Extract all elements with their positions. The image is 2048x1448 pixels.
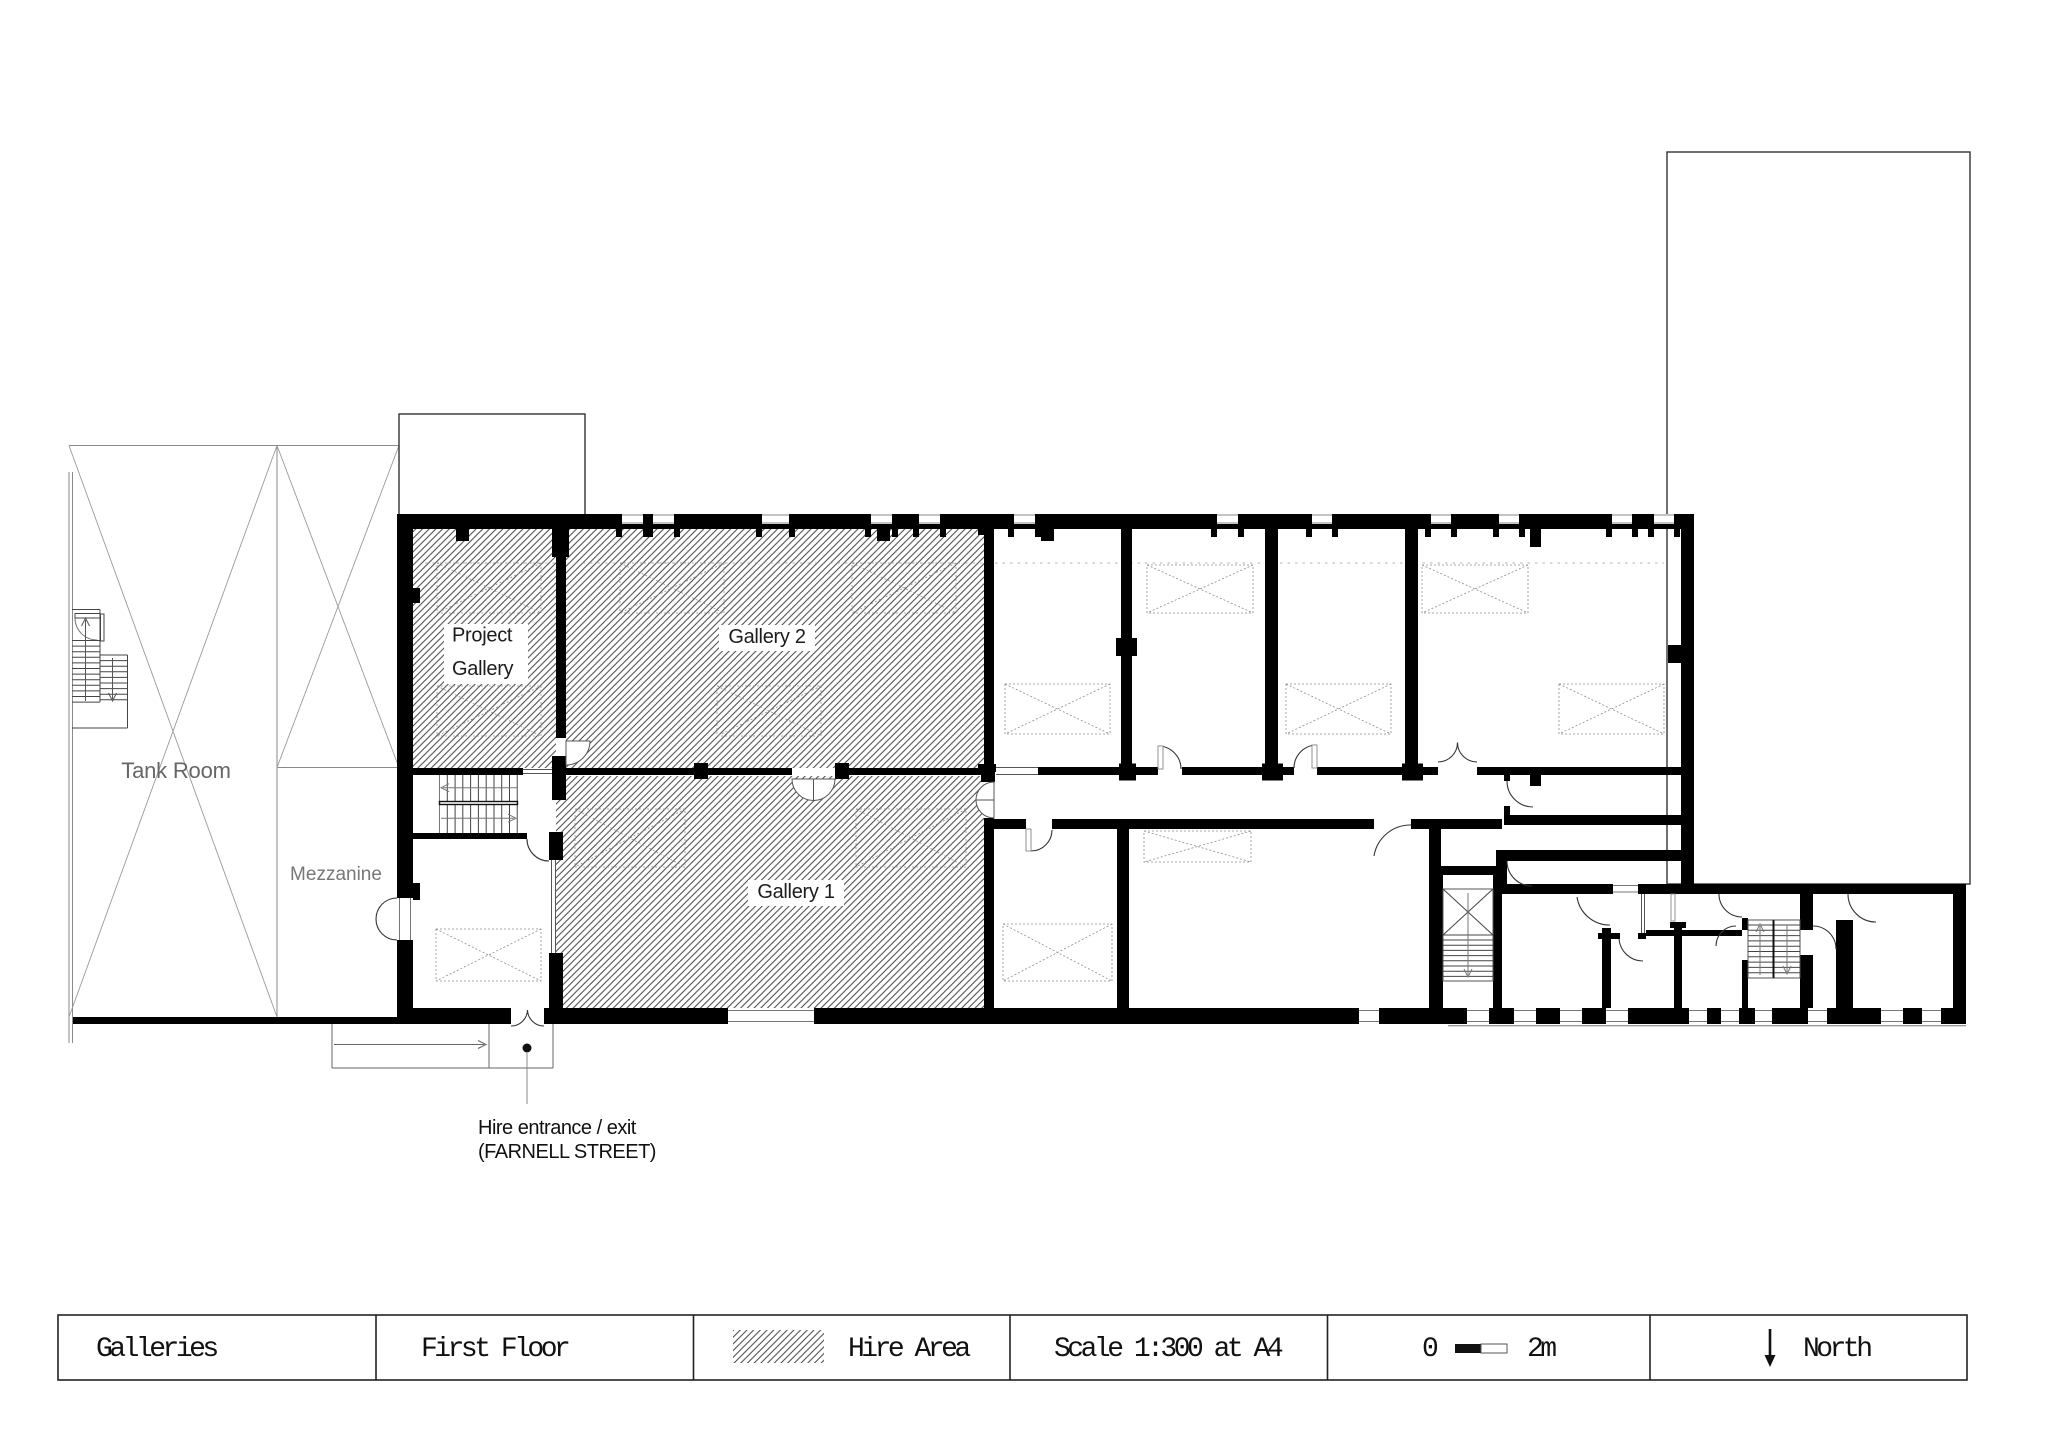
svg-text:North: North xyxy=(1803,1334,1871,1365)
svg-text:First Floor: First Floor xyxy=(421,1334,569,1365)
svg-text:Tank Room: Tank Room xyxy=(121,758,230,783)
svg-text:Mezzanine: Mezzanine xyxy=(290,864,382,885)
svg-text:Scale 1:300 at A4: Scale 1:300 at A4 xyxy=(1054,1334,1283,1365)
svg-text:Hire entrance / exit: Hire entrance / exit xyxy=(478,1117,637,1139)
svg-text:Gallery: Gallery xyxy=(452,658,514,680)
svg-text:Hire Area: Hire Area xyxy=(848,1334,970,1365)
svg-text:(FARNELL STREET): (FARNELL STREET) xyxy=(478,1141,656,1163)
svg-text:Project: Project xyxy=(452,625,513,647)
svg-text:Gallery 2: Gallery 2 xyxy=(728,626,806,648)
svg-text:Galleries: Galleries xyxy=(96,1334,217,1365)
svg-text:Gallery 1: Gallery 1 xyxy=(757,881,835,903)
svg-text:2m: 2m xyxy=(1527,1334,1556,1365)
